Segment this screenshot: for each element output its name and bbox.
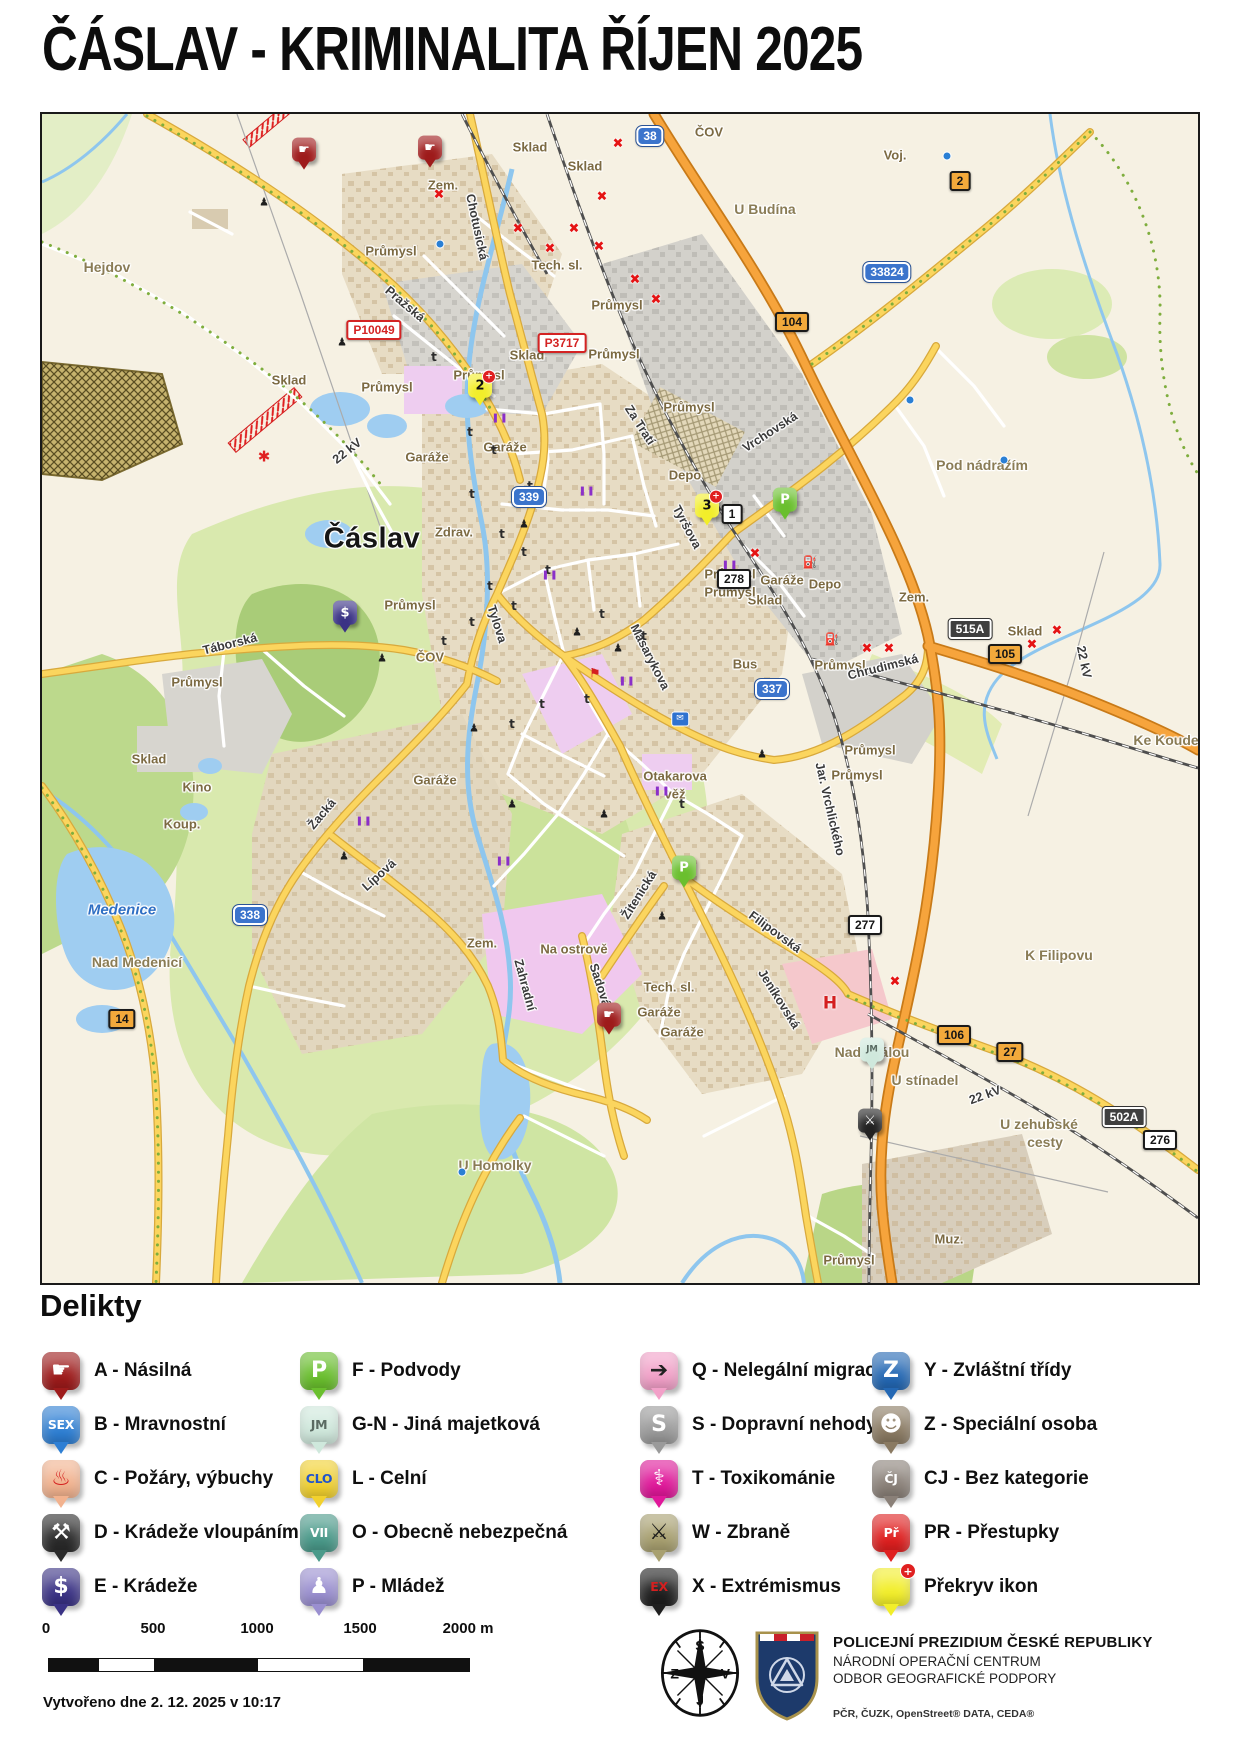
tee-icon: t bbox=[509, 718, 515, 730]
rail-crossing-icon: ✖ bbox=[862, 643, 873, 656]
map-label: Medenice bbox=[88, 902, 156, 919]
legend-item-y: ZY - Zvláštní třídy bbox=[872, 1352, 1200, 1406]
map-label: Žitenická bbox=[619, 868, 660, 921]
legend-icon-glyph: SEX bbox=[48, 1419, 74, 1432]
beer-icon: ❚❚ bbox=[495, 858, 512, 867]
scale-tick: 1000 bbox=[240, 1620, 273, 1637]
coa-icon: ⚑ bbox=[589, 668, 601, 681]
legend-item-w: ⚔W - Zbraně bbox=[640, 1514, 872, 1568]
map-label: Kino bbox=[183, 780, 212, 795]
legend-marker-icon: ⚕ bbox=[640, 1460, 678, 1498]
rail-crossing-icon: ✖ bbox=[569, 223, 580, 236]
legend-marker-icon: + bbox=[872, 1568, 910, 1606]
legend-icon-glyph: S bbox=[651, 1414, 667, 1436]
map-label: Na ostrově bbox=[540, 942, 607, 957]
legend-item-b: SEXB - Mravnostní bbox=[42, 1406, 300, 1460]
scalebar-segment bbox=[363, 1659, 469, 1671]
compass-north-label: S bbox=[695, 1637, 704, 1653]
map-label: Bus bbox=[733, 657, 758, 672]
road-shield: 105 bbox=[988, 644, 1022, 664]
scalebar-segment bbox=[154, 1659, 258, 1671]
hosp-icon: H bbox=[823, 996, 837, 1013]
map-label: Sklad bbox=[272, 373, 307, 388]
road-shield: 38 bbox=[636, 126, 663, 146]
map-label: Garáže bbox=[405, 450, 448, 465]
beer-icon: ❚❚ bbox=[618, 678, 635, 687]
map-label: Táborská bbox=[201, 630, 258, 657]
legend-icon-glyph: P bbox=[311, 1360, 327, 1382]
mon-icon: ♟ bbox=[572, 627, 582, 638]
legend-marker-icon: ČJ bbox=[872, 1460, 910, 1498]
rail-crossing-icon: ✖ bbox=[884, 643, 895, 656]
marker-fraud: P bbox=[773, 488, 797, 512]
marker-glyph: P bbox=[679, 861, 689, 874]
legend-item-label: T - Toxikománie bbox=[692, 1460, 835, 1498]
map-label: U Homolky bbox=[458, 1157, 531, 1173]
legend-item-label: Z - Speciální osoba bbox=[924, 1406, 1097, 1444]
legend-item-e: $E - Krádeže bbox=[42, 1568, 300, 1622]
legend-heading: Delikty bbox=[40, 1288, 142, 1324]
map-label: ČOV bbox=[695, 125, 723, 140]
legend-item-l: CLOL - Celní bbox=[300, 1460, 640, 1514]
marker-violent-crime: ☛ bbox=[597, 1003, 621, 1027]
legend-marker-icon: ⚔ bbox=[640, 1514, 678, 1552]
map-label: Depo bbox=[809, 577, 842, 592]
road-shield: 2 bbox=[950, 171, 971, 191]
scale-tick: 1500 bbox=[343, 1620, 376, 1637]
rail-crossing-icon: ✖ bbox=[1027, 639, 1038, 652]
map-label: Tylova bbox=[484, 603, 509, 644]
dot-icon bbox=[1000, 456, 1009, 465]
legend-icon-glyph: Př bbox=[884, 1527, 899, 1540]
legend-item-label: O - Obecně nebezpečná bbox=[352, 1514, 567, 1552]
dot-icon bbox=[906, 396, 915, 405]
map-label: K Filipovu bbox=[1025, 947, 1093, 963]
scalebar bbox=[48, 1658, 470, 1672]
legend-item-label: B - Mravnostní bbox=[94, 1406, 226, 1444]
map-label: 22 kV bbox=[1074, 645, 1094, 680]
legend-item-label: C - Požáry, výbuchy bbox=[94, 1460, 273, 1498]
env-icon: ✉ bbox=[671, 712, 689, 727]
road-shield: 104 bbox=[775, 312, 809, 332]
beer-icon: ❚❚ bbox=[653, 788, 670, 797]
map-label: Průmysl bbox=[361, 380, 412, 395]
legend-item-t: ⚕T - Toxikománie bbox=[640, 1460, 872, 1514]
map-label: Depo bbox=[669, 468, 702, 483]
marker-violent-crime: ☛ bbox=[418, 136, 442, 160]
road-shield: 337 bbox=[755, 679, 789, 699]
legend-icon-glyph: ☻ bbox=[880, 1414, 903, 1436]
legend-icon-glyph: CLO bbox=[306, 1473, 332, 1486]
legend-item-z: ☻Z - Speciální osoba bbox=[872, 1406, 1200, 1460]
page: ČÁSLAV - KRIMINALITA ŘÍJEN 2025 bbox=[0, 0, 1240, 1754]
legend-marker-icon: ➔ bbox=[640, 1352, 678, 1390]
mon-icon: ♟ bbox=[519, 519, 529, 530]
map-credits: PČR, ČUZK, OpenStreet® DATA, CEDA® bbox=[833, 1708, 1034, 1720]
map-label: Průmysl bbox=[591, 298, 642, 313]
road-shield: 338 bbox=[233, 905, 267, 925]
marker-glyph: ⚔ bbox=[864, 1114, 876, 1127]
beer-icon: ❚❚ bbox=[491, 415, 508, 424]
legend-icon-glyph: ⚕ bbox=[653, 1468, 665, 1490]
legend-marker-icon: SEX bbox=[42, 1406, 80, 1444]
legend-marker-icon: Př bbox=[872, 1514, 910, 1552]
map-label: Garáže bbox=[483, 440, 526, 455]
road-shield: P10049 bbox=[346, 320, 401, 340]
tee-icon: t bbox=[539, 698, 545, 710]
fuel-icon: ⛽ bbox=[803, 556, 818, 568]
legend-marker-icon: ♟ bbox=[300, 1568, 338, 1606]
fuel-icon: ⛽ bbox=[825, 633, 840, 645]
compass-icon: S V J Z bbox=[650, 1626, 750, 1720]
legend-icon-glyph: ⚒ bbox=[51, 1522, 71, 1544]
road-shield: 278 bbox=[717, 569, 751, 589]
legend-item-c: ♨C - Požáry, výbuchy bbox=[42, 1460, 300, 1514]
scalebar-segment bbox=[258, 1659, 363, 1671]
tee-icon: t bbox=[487, 580, 493, 592]
map-label: Sklad bbox=[132, 752, 167, 767]
map-label: 22 kV bbox=[330, 435, 364, 466]
legend-marker-icon: $ bbox=[42, 1568, 80, 1606]
rail-crossing-icon: ✖ bbox=[890, 976, 901, 989]
mon-icon: ♟ bbox=[507, 799, 517, 810]
map-label: Průmysl bbox=[663, 400, 714, 415]
marker-overlap-2: 2+ bbox=[468, 374, 492, 398]
scalebar-segment bbox=[49, 1659, 99, 1671]
legend-item-o: VIIO - Obecně nebezpečná bbox=[300, 1514, 640, 1568]
map-label: Vrchovská bbox=[740, 409, 800, 455]
mon-icon: ♟ bbox=[613, 643, 623, 654]
tee-icon: t bbox=[584, 693, 590, 705]
map-label: Žacká bbox=[305, 796, 339, 832]
legend-item-label: Q - Nelegální migrace bbox=[692, 1352, 886, 1390]
legend-item-label: X - Extrémismus bbox=[692, 1568, 841, 1606]
legend-marker-icon: Z bbox=[872, 1352, 910, 1390]
map-label: Lípová bbox=[359, 856, 398, 893]
map-label: Průmysl bbox=[171, 675, 222, 690]
legend-icon-glyph: EX bbox=[650, 1581, 668, 1594]
road-shield: 515A bbox=[949, 619, 992, 639]
map-label: Filipovská bbox=[746, 908, 804, 955]
map-label: Hejdov bbox=[84, 259, 131, 275]
map-label: U zehubské bbox=[1000, 1116, 1078, 1132]
legend-icon-glyph: Z bbox=[883, 1360, 899, 1382]
legend-item-label: W - Zbraně bbox=[692, 1514, 790, 1552]
beer-icon: ❚❚ bbox=[355, 818, 372, 827]
map-label: Zem. bbox=[467, 936, 497, 951]
scalebar-segment bbox=[99, 1659, 154, 1671]
legend-item-label: PR - Přestupky bbox=[924, 1514, 1059, 1552]
compass-west-label: Z bbox=[670, 1666, 679, 1682]
legend-item-label: D - Krádeže vloupáním bbox=[94, 1514, 299, 1552]
overlap-plus-badge: + bbox=[482, 370, 496, 384]
map-label: U stínadel bbox=[892, 1072, 959, 1088]
rail-crossing-icon: ✖ bbox=[594, 241, 605, 254]
legend-item-ov: +Překryv ikon bbox=[872, 1568, 1200, 1622]
marker-glyph: ☛ bbox=[603, 1008, 615, 1021]
map-label: Pod nádražím bbox=[936, 457, 1028, 473]
mon-icon: ♟ bbox=[377, 653, 387, 664]
tee-icon: t bbox=[599, 608, 605, 620]
org-name: POLICEJNÍ PREZIDIUM ČESKÉ REPUBLIKY bbox=[833, 1634, 1153, 1651]
tee-icon: t bbox=[469, 488, 475, 500]
road-shield: 276 bbox=[1143, 1130, 1177, 1150]
legend: ☛A - NásilnáSEXB - Mravnostní♨C - Požáry… bbox=[42, 1352, 1200, 1622]
map-label: Garáže bbox=[660, 1025, 703, 1040]
rail-crossing-icon: ✖ bbox=[651, 294, 662, 307]
mon-icon: ♟ bbox=[657, 911, 667, 922]
legend-icon-glyph: VII bbox=[310, 1527, 328, 1540]
legend-icon-glyph: JM bbox=[311, 1419, 328, 1432]
mon-icon: ♟ bbox=[339, 851, 349, 862]
map-label: 22 kV bbox=[967, 1083, 1002, 1107]
legend-item-s: SS - Dopravní nehody bbox=[640, 1406, 872, 1460]
scale-tick: 2000 m bbox=[443, 1620, 494, 1637]
marker-fraud: P bbox=[672, 856, 696, 880]
scalebar-labels: 0500100015002000 m bbox=[0, 1620, 560, 1638]
marker-glyph: ☛ bbox=[298, 143, 310, 156]
tee-icon: t bbox=[511, 600, 517, 612]
rail-crossing-icon: ✖ bbox=[750, 548, 761, 561]
marker-glyph: $ bbox=[340, 606, 349, 619]
compass-east-label: V bbox=[721, 1666, 731, 1682]
legend-item-label: G-N - Jiná majetková bbox=[352, 1406, 540, 1444]
rail-crossing-icon: ✖ bbox=[597, 191, 608, 204]
map-label: Garáže bbox=[413, 773, 456, 788]
road-shield: 27 bbox=[996, 1042, 1023, 1062]
rail-crossing-icon: ✖ bbox=[513, 223, 524, 236]
marker-other-property: JM bbox=[860, 1038, 884, 1062]
org-dept1: NÁRODNÍ OPERAČNÍ CENTRUM bbox=[833, 1654, 1153, 1669]
legend-item-label: A - Násilná bbox=[94, 1352, 192, 1390]
legend-item-pr: PřPR - Přestupky bbox=[872, 1514, 1200, 1568]
rail-crossing-icon: ✖ bbox=[613, 138, 624, 151]
legend-item-d: ⚒D - Krádeže vloupáním bbox=[42, 1514, 300, 1568]
tee-icon: t bbox=[679, 798, 685, 810]
map-label: Průmysl bbox=[588, 347, 639, 362]
compass-south-label: J bbox=[696, 1692, 704, 1708]
legend-icon-glyph: ⚔ bbox=[649, 1522, 669, 1544]
mon-icon: ♟ bbox=[599, 809, 609, 820]
map-label: Zdrav. bbox=[435, 525, 473, 540]
org-dept2: ODBOR GEOGRAFICKÉ PODPORY bbox=[833, 1671, 1153, 1686]
map-label: Čáslav bbox=[324, 523, 421, 556]
mon-icon: ♟ bbox=[259, 197, 269, 208]
overlap-plus-badge: + bbox=[900, 1563, 916, 1579]
legend-marker-icon: ♨ bbox=[42, 1460, 80, 1498]
map-label: Tech. sl. bbox=[643, 980, 694, 995]
dot-icon bbox=[458, 1168, 467, 1177]
legend-item-label: F - Podvody bbox=[352, 1352, 461, 1390]
legend-item-label: Y - Zvláštní třídy bbox=[924, 1352, 1071, 1390]
legend-marker-icon: S bbox=[640, 1406, 678, 1444]
map-label: Sklad bbox=[568, 159, 603, 174]
dot-icon bbox=[943, 152, 952, 161]
mon-icon: ♟ bbox=[337, 337, 347, 348]
map-label: Průmysl bbox=[844, 743, 895, 758]
marker-violent-crime: ☛ bbox=[292, 138, 316, 162]
page-title: ČÁSLAV - KRIMINALITA ŘÍJEN 2025 bbox=[42, 14, 862, 85]
mon-icon: ♟ bbox=[757, 749, 767, 760]
legend-item-cj: ČJCJ - Bez kategorie bbox=[872, 1460, 1200, 1514]
legend-item-label: P - Mládež bbox=[352, 1568, 445, 1606]
tee-icon: t bbox=[467, 426, 473, 438]
created-note: Vytvořeno dne 2. 12. 2025 v 10:17 bbox=[43, 1694, 281, 1711]
road-shield: 277 bbox=[848, 915, 882, 935]
map-frame: ČáslavHejdovMedeniceNad MedenicíU Budína… bbox=[40, 112, 1200, 1285]
dot-icon bbox=[436, 240, 445, 249]
map-label: Nad Medenicí bbox=[92, 954, 182, 970]
road-shield: 1 bbox=[722, 504, 743, 524]
map-overlay: ČáslavHejdovMedeniceNad MedenicíU Budína… bbox=[42, 114, 1198, 1283]
legend-marker-icon: JM bbox=[300, 1406, 338, 1444]
legend-icon-glyph: ☛ bbox=[51, 1360, 71, 1382]
road-shield: 502A bbox=[1103, 1107, 1146, 1127]
map-label: Jeníkovská bbox=[755, 967, 803, 1032]
map-label: Voj. bbox=[884, 148, 907, 163]
legend-icon-glyph: ♨ bbox=[51, 1468, 71, 1490]
gear-icon: ✱ bbox=[258, 450, 271, 465]
map-label: Pražská bbox=[382, 283, 427, 324]
legend-item-a: ☛A - Násilná bbox=[42, 1352, 300, 1406]
tee-icon: t bbox=[641, 630, 647, 642]
legend-item-p: ♟P - Mládež bbox=[300, 1568, 640, 1622]
legend-item-label: L - Celní bbox=[352, 1460, 427, 1498]
legend-marker-icon: ⚒ bbox=[42, 1514, 80, 1552]
map-label: cesty bbox=[1027, 1134, 1063, 1150]
map-label: Průmysl bbox=[384, 598, 435, 613]
legend-item-label: E - Krádeže bbox=[94, 1568, 197, 1606]
mon-icon: ♟ bbox=[469, 723, 479, 734]
road-shield: 33824 bbox=[863, 262, 910, 282]
legend-marker-icon: P bbox=[300, 1352, 338, 1390]
map-label: Průmysl bbox=[365, 244, 416, 259]
map-label: Muz. bbox=[935, 1232, 964, 1247]
legend-icon-glyph: ♟ bbox=[309, 1576, 329, 1598]
tee-icon: t bbox=[499, 528, 505, 540]
beer-icon: ❚❚ bbox=[578, 488, 595, 497]
tee-icon: t bbox=[441, 635, 447, 647]
rail-crossing-icon: ✖ bbox=[545, 243, 556, 256]
marker-weapons: ⚔ bbox=[858, 1109, 882, 1133]
rail-crossing-icon: ✖ bbox=[434, 189, 445, 202]
map-label: Koup. bbox=[164, 817, 201, 832]
map-label: Zahradní bbox=[511, 958, 538, 1013]
legend-marker-icon: EX bbox=[640, 1568, 678, 1606]
map-label: Otakarova bbox=[643, 769, 707, 784]
tee-icon: t bbox=[491, 444, 497, 456]
legend-icon-glyph: ➔ bbox=[650, 1360, 668, 1382]
tee-icon: t bbox=[431, 351, 437, 363]
org-block: POLICEJNÍ PREZIDIUM ČESKÉ REPUBLIKY NÁRO… bbox=[833, 1634, 1153, 1686]
rail-crossing-icon: ✖ bbox=[630, 274, 641, 287]
legend-icon-glyph: $ bbox=[53, 1576, 68, 1598]
tee-icon: t bbox=[521, 546, 527, 558]
road-shield: P3717 bbox=[538, 333, 587, 353]
scale-tick: 500 bbox=[140, 1620, 165, 1637]
overlap-plus-badge: + bbox=[709, 490, 723, 504]
legend-icon-glyph: ČJ bbox=[884, 1473, 897, 1486]
map-label: Sklad bbox=[1008, 624, 1043, 639]
map-label: Průmysl bbox=[831, 768, 882, 783]
legend-item-f: PF - Podvody bbox=[300, 1352, 640, 1406]
legend-item-label: CJ - Bez kategorie bbox=[924, 1460, 1089, 1498]
map-label: Tech. sl. bbox=[531, 258, 582, 273]
map-label: ČOV bbox=[416, 650, 444, 665]
road-shield: 14 bbox=[108, 1009, 135, 1029]
map-label: Garáže bbox=[760, 573, 803, 588]
legend-item-label: S - Dopravní nehody bbox=[692, 1406, 877, 1444]
map-label: Zem. bbox=[899, 590, 929, 605]
map-label: U Budína bbox=[734, 201, 795, 217]
legend-marker-icon: ☻ bbox=[872, 1406, 910, 1444]
police-emblem-icon bbox=[755, 1628, 819, 1722]
tee-icon: t bbox=[469, 616, 475, 628]
legend-marker-icon: CLO bbox=[300, 1460, 338, 1498]
map-label: Garáže bbox=[637, 1005, 680, 1020]
marker-theft: $ bbox=[333, 601, 357, 625]
map-label: Za Tratí bbox=[622, 403, 658, 448]
legend-item-x: EXX - Extrémismus bbox=[640, 1568, 872, 1622]
legend-marker-icon: ☛ bbox=[42, 1352, 80, 1390]
scale-tick: 0 bbox=[42, 1620, 50, 1637]
road-shield: 106 bbox=[937, 1025, 971, 1045]
marker-glyph: ☛ bbox=[424, 141, 436, 154]
map-label: Ke Koude bbox=[1133, 732, 1198, 748]
marker-overlap-3: 3+ bbox=[695, 494, 719, 518]
legend-item-g-n: JMG-N - Jiná majetková bbox=[300, 1406, 640, 1460]
marker-glyph: JM bbox=[866, 1045, 878, 1054]
legend-item-q: ➔Q - Nelegální migrace bbox=[640, 1352, 872, 1406]
map-label: Sklad bbox=[513, 140, 548, 155]
map-label: Chotusická bbox=[463, 193, 491, 262]
marker-glyph: P bbox=[780, 493, 790, 506]
road-shield: 339 bbox=[512, 487, 546, 507]
legend-item-label: Překryv ikon bbox=[924, 1568, 1038, 1606]
map-label: Průmysl bbox=[823, 1253, 874, 1268]
rail-crossing-icon: ✖ bbox=[1052, 625, 1063, 638]
map-label: Sadová bbox=[586, 962, 613, 1009]
legend-marker-icon: VII bbox=[300, 1514, 338, 1552]
beer-icon: ❚❚ bbox=[541, 572, 558, 581]
